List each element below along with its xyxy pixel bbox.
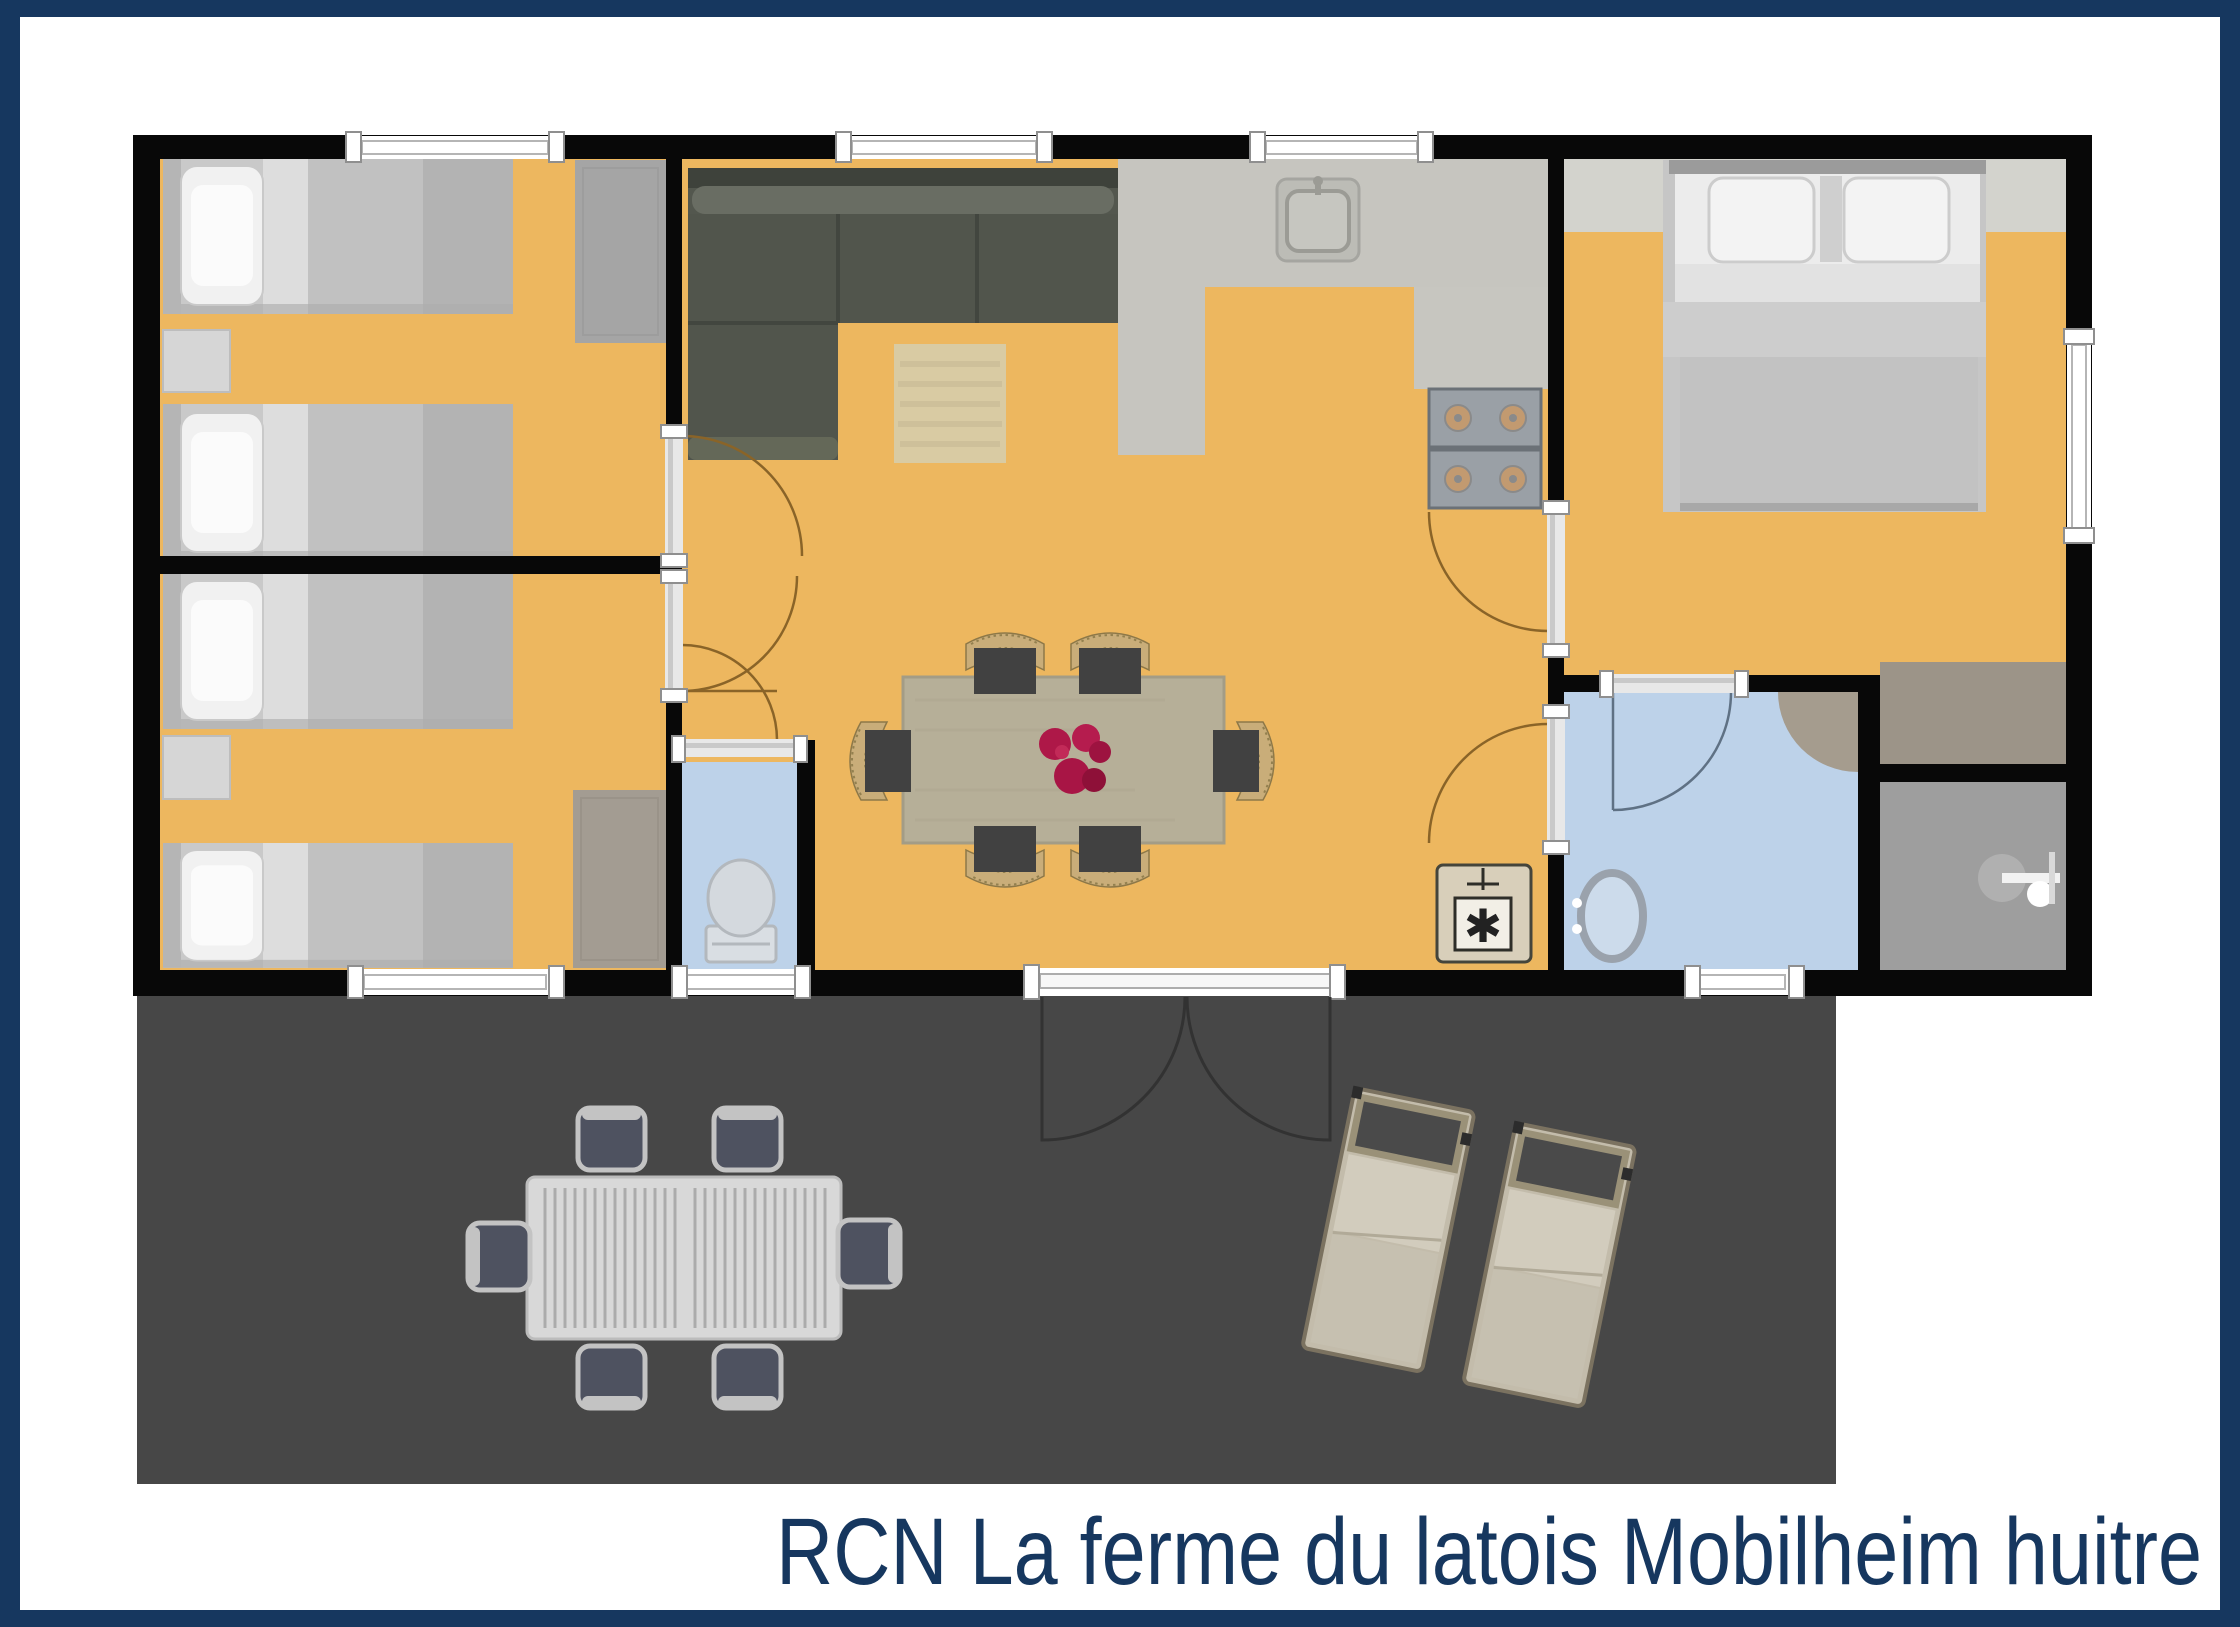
svg-text:RCN La ferme du latois Mobilhe: RCN La ferme du latois Mobilheim huitre bbox=[776, 1499, 2202, 1605]
svg-text:✱: ✱ bbox=[1464, 900, 1503, 952]
